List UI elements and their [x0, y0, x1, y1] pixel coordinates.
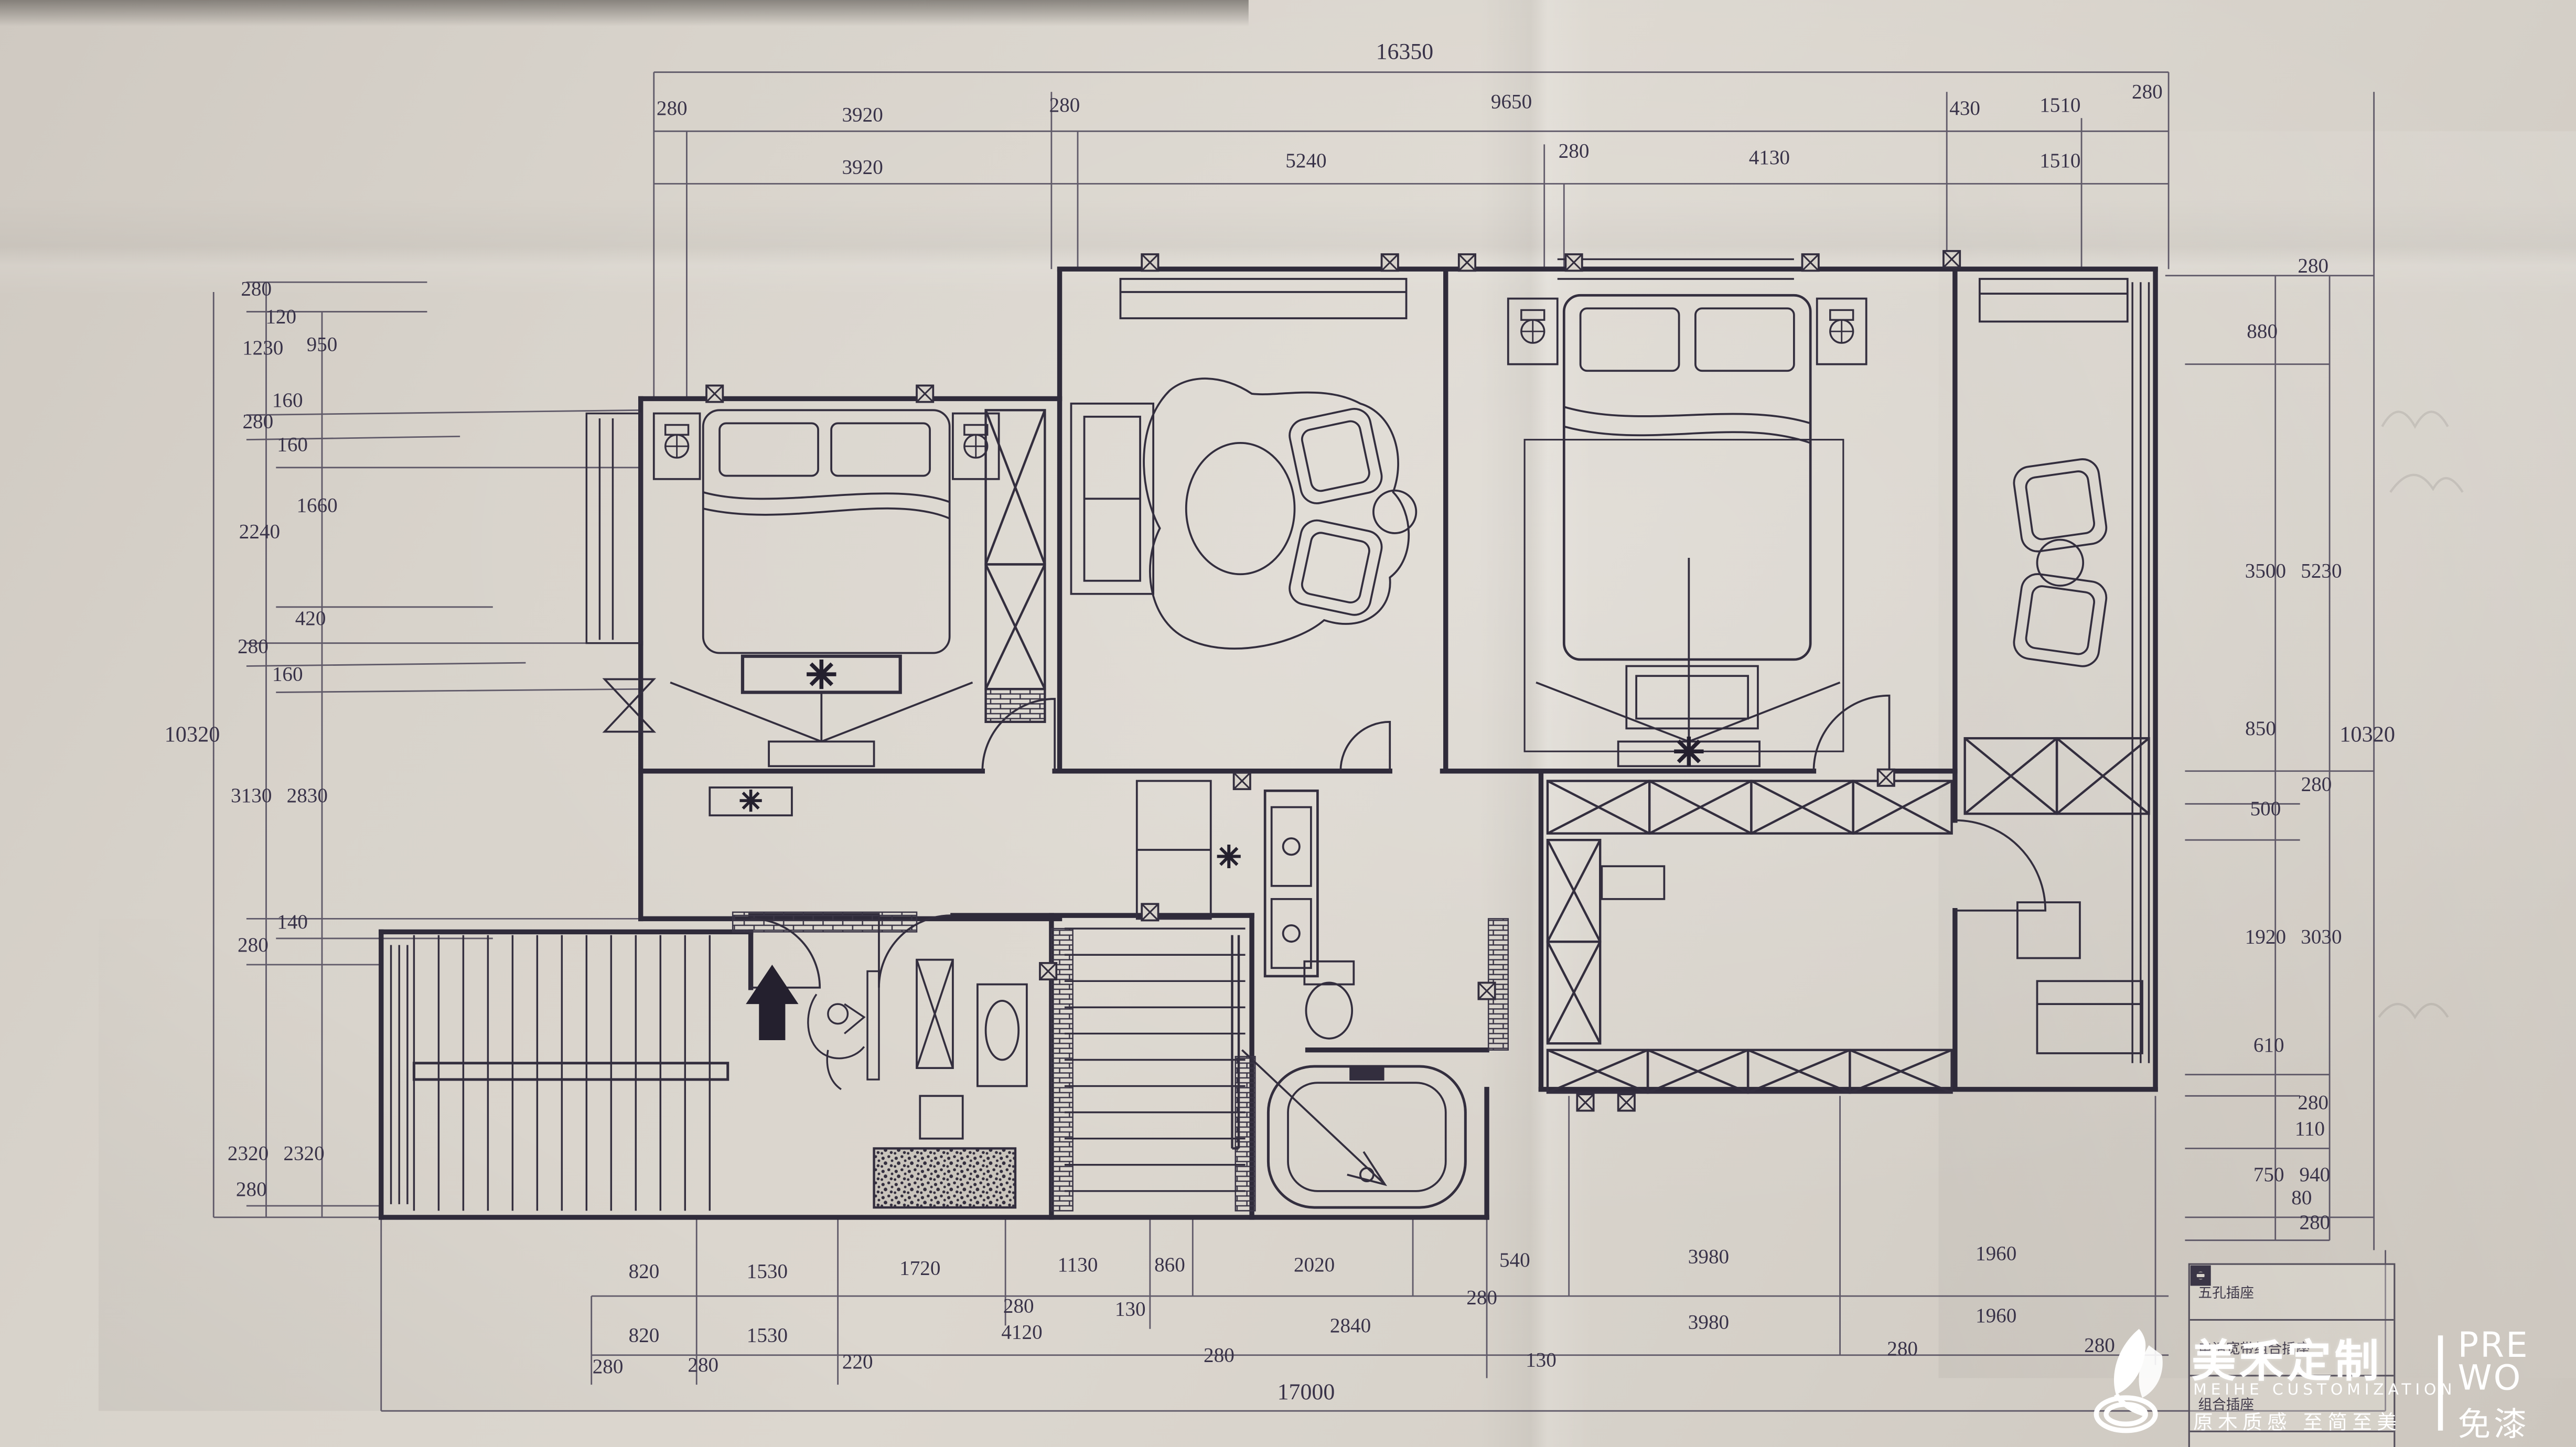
door-arcs: [751, 696, 2046, 988]
dimension-label: 280: [2132, 81, 2163, 103]
dimension-label: 280: [1466, 1287, 1497, 1309]
legend-row: 控制面板: [2190, 1432, 2393, 1447]
dimension-label: 160: [277, 434, 308, 456]
side-table: [1373, 491, 1416, 533]
closet-island: [1602, 866, 1664, 899]
dimension-label: 1960: [1976, 1304, 2016, 1327]
dimension-label: 280: [241, 277, 272, 300]
dimension-label: 1920: [2245, 925, 2286, 948]
dimension-label: 940: [2300, 1163, 2331, 1186]
dimension-label: 420: [295, 607, 326, 630]
ceiling-light-icon: [1217, 845, 1241, 868]
legend-row: 组合插座: [2190, 1376, 2393, 1432]
dimension-label: 1660: [296, 494, 337, 516]
dimension-label: 280: [2301, 773, 2332, 795]
control-panel-icon: [2190, 1265, 2212, 1287]
dimension-label: 80: [2291, 1186, 2312, 1209]
bed: [1564, 295, 1810, 660]
stool: [920, 1096, 962, 1138]
dimension-label: 160: [272, 663, 303, 686]
dimension-label: 3920: [842, 104, 883, 126]
pillow: [1695, 308, 1794, 371]
storage-room-furniture: [2017, 902, 2142, 1053]
dimension-label: 1230: [242, 337, 283, 359]
dimension-label: 280: [238, 635, 269, 657]
person-at-desk: [808, 971, 879, 1089]
dimension-label: 120: [265, 305, 296, 328]
brick-hatch-walls: [733, 912, 1508, 1211]
tv-console: [769, 741, 874, 766]
dimension-label: 220: [842, 1351, 873, 1373]
pillow: [720, 423, 818, 476]
dimension-label: 3920: [842, 156, 883, 179]
closet-wardrobes: [1548, 781, 1952, 1093]
dimension-label: 280: [236, 1178, 267, 1201]
dimension-label: 160: [272, 389, 303, 412]
dimension-label: 750: [2253, 1163, 2284, 1186]
legend-row: 五孔插座: [2190, 1265, 2393, 1321]
ceiling-light-icon: [1674, 737, 1703, 766]
bedroom1-wardrobe: [986, 410, 1045, 722]
dimension-label: 1130: [1058, 1254, 1098, 1276]
dimension-label: 1530: [747, 1260, 788, 1283]
dimension-label: 2840: [1330, 1314, 1371, 1337]
dimension-label: 1530: [747, 1324, 788, 1347]
dimension-label: 110: [2295, 1117, 2325, 1140]
dimension-label: 1720: [899, 1257, 940, 1279]
armchair: [1286, 406, 1384, 506]
dimension-label: 130: [1526, 1349, 1557, 1372]
dimension-label: 280: [1049, 94, 1080, 116]
dimension-label: 1510: [2040, 94, 2080, 116]
dimension-label: 610: [2253, 1034, 2284, 1056]
dimension-label: 280: [238, 934, 269, 956]
dimension-label: 540: [1499, 1249, 1530, 1271]
dimension-label: 140: [277, 911, 308, 933]
dimension-label: 500: [2250, 797, 2281, 820]
cabinet: [1120, 279, 1406, 318]
staircase-main: [414, 935, 727, 1211]
stairs-up-arrow: [746, 965, 798, 1040]
bathtub: [1268, 1066, 1465, 1207]
staircase-secondary: [1065, 928, 1385, 1191]
dimension-label: 280: [657, 97, 688, 120]
armchair: [1286, 517, 1384, 618]
toilet-and-tub: [1268, 962, 1465, 1207]
corridor-fixtures: [710, 781, 1317, 976]
dimension-label: 3500: [2245, 560, 2286, 582]
dimension-label: 280: [1204, 1344, 1235, 1366]
dimension-label: 10320: [2339, 722, 2395, 747]
toilet-bowl: [1306, 982, 1352, 1038]
ceiling-light-icon: [807, 660, 836, 689]
dimension-label: 16350: [1376, 39, 1434, 64]
floor-plan-drawing: 1635028039202809650430151028039205240280…: [0, 0, 2576, 1447]
legend-label: 电话宽带组合插座: [2198, 1338, 2310, 1358]
dimension-label: 3980: [1688, 1246, 1729, 1268]
dimension-label: 130: [1115, 1298, 1146, 1321]
pillow: [1581, 308, 1679, 371]
dimension-label: 9650: [1491, 91, 1532, 113]
dimension-label: 850: [2245, 717, 2276, 740]
dimension-label: 280: [1559, 139, 1590, 162]
dimension-label: 280: [2300, 1211, 2331, 1234]
dimension-label: 2830: [287, 784, 328, 807]
dimension-label: 860: [1154, 1254, 1185, 1276]
legend-box: 五孔插座 电话宽带组合插座 组合插座 控制面板: [2188, 1264, 2396, 1447]
ceiling-light-icon: [739, 790, 761, 812]
dimension-label: 1510: [2040, 149, 2080, 172]
dimension-labels: 1635028039202809650430151028039205240280…: [165, 39, 2395, 1405]
balcony-cabinet-x: [1965, 738, 2149, 814]
dimension-label: 280: [2298, 1091, 2328, 1114]
window-balcony-right: [2132, 282, 2149, 1063]
oval-table: [1186, 443, 1295, 574]
dimension-label: 430: [1949, 97, 1980, 120]
balcony-furniture: [1980, 279, 2128, 668]
shower-mat: [874, 1148, 1015, 1207]
double-vanity: [1265, 791, 1317, 976]
bed: [703, 410, 950, 653]
legend-label: 组合插座: [2198, 1394, 2254, 1413]
window-stairs-left: [391, 945, 407, 1204]
tub-faucet: [1350, 1066, 1383, 1079]
living-room-furniture: [1071, 279, 1416, 649]
bathroom-fixtures: [874, 960, 1027, 1208]
dimension-label: 3030: [2301, 925, 2342, 948]
pillow: [831, 423, 930, 476]
dimension-label: 280: [2084, 1334, 2115, 1357]
dimension-label: 280: [688, 1354, 718, 1376]
dimension-label: 17000: [1278, 1379, 1335, 1405]
legend-row: 电话宽带组合插座: [2190, 1321, 2393, 1376]
dimension-label: 280: [2298, 254, 2328, 277]
dimension-label: 280: [1003, 1294, 1034, 1317]
dimension-label: 2240: [239, 520, 280, 543]
dimension-label: 5230: [2301, 560, 2342, 582]
dimension-label: 880: [2247, 320, 2278, 343]
cabinet: [1980, 279, 2128, 321]
master-bedroom-furniture: [1508, 295, 1866, 766]
sink-vanity: [978, 985, 1027, 1086]
dimension-label: 1960: [1976, 1242, 2016, 1265]
dimension-label: 3980: [1688, 1311, 1729, 1334]
dimension-label: 4130: [1749, 146, 1790, 169]
socket-symbols: [706, 251, 1960, 1111]
dimension-label: 3130: [231, 784, 272, 807]
plant-decor: [605, 679, 654, 732]
dimension-label: 2020: [1294, 1254, 1335, 1276]
pencil-scribbles: [2379, 412, 2463, 1017]
window-bay-left: [586, 414, 640, 643]
dimension-label: 280: [1887, 1337, 1918, 1360]
dimension-label: 820: [629, 1324, 660, 1347]
dimension-label: 280: [593, 1355, 624, 1378]
dimension-label: 2320: [283, 1142, 324, 1164]
dimension-label: 820: [629, 1260, 660, 1283]
dimension-label: 950: [307, 333, 338, 356]
bedroom1-furniture: [605, 410, 999, 766]
rug: [1525, 440, 1843, 752]
dimension-label: 2320: [228, 1142, 269, 1164]
photographed-floorplan-page: 1635028039202809650430151028039205240280…: [0, 0, 2576, 1447]
dimension-label: 10320: [165, 722, 220, 747]
dimension-label: 4120: [1001, 1321, 1042, 1343]
dimension-label: 280: [242, 411, 273, 433]
dimension-label: 5240: [1285, 149, 1326, 172]
round-table: [2037, 540, 2083, 586]
